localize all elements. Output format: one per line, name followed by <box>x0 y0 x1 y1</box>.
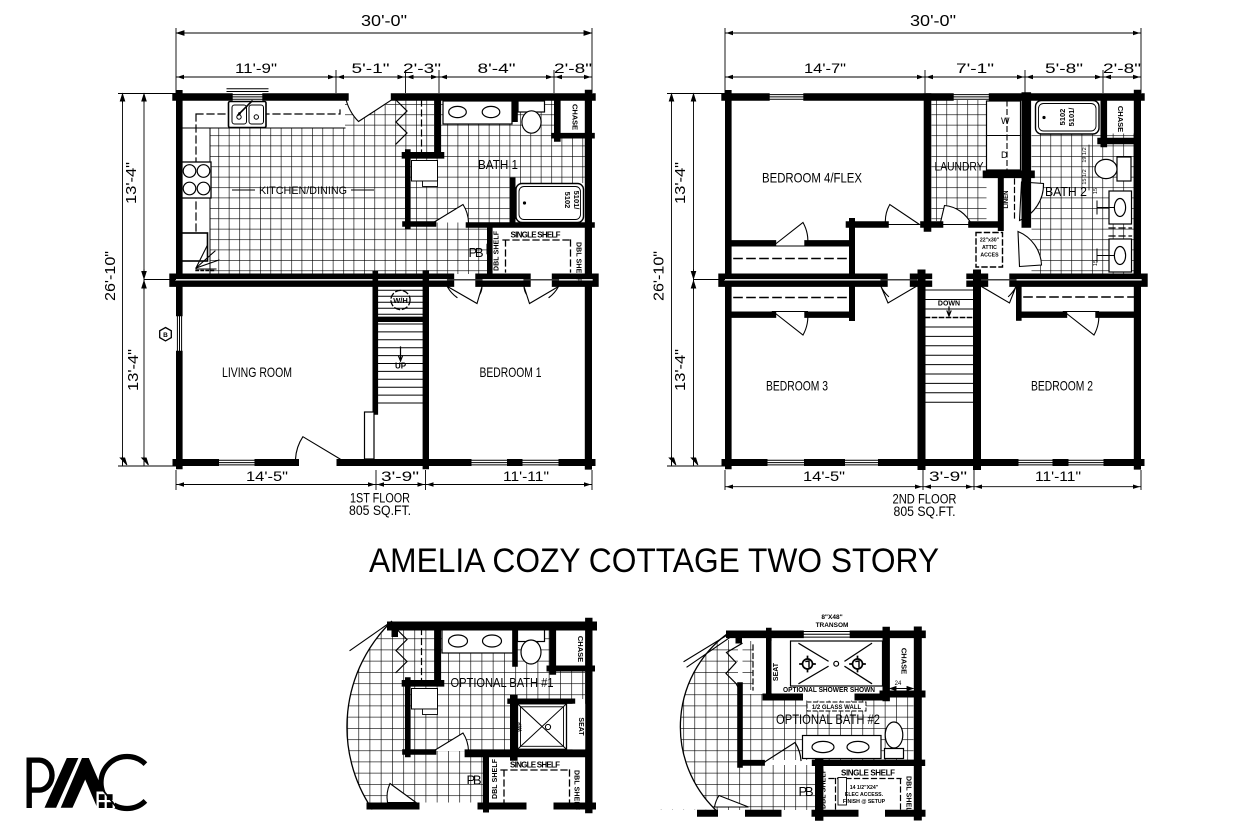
svg-text:UP: UP <box>395 362 407 371</box>
svg-text:1/2 GLASS WALL: 1/2 GLASS WALL <box>812 705 862 711</box>
svg-text:DBL SHELF: DBL SHELF <box>575 242 582 283</box>
svg-text:SEAT: SEAT <box>577 717 584 736</box>
svg-text:PB: PB <box>469 245 484 260</box>
svg-text:805 SQ.FT.: 805 SQ.FT. <box>894 504 956 519</box>
svg-text:W/P: W/P <box>518 722 524 732</box>
svg-text:5101/: 5101/ <box>572 191 581 211</box>
svg-text:AMELIA COZY COTTAGE TWO STORY: AMELIA COZY COTTAGE TWO STORY <box>369 542 939 580</box>
svg-text:19 1/2: 19 1/2 <box>1082 147 1088 162</box>
svg-text:2'-3": 2'-3" <box>403 61 441 76</box>
svg-text:SINGLE SHELF: SINGLE SHELF <box>841 769 895 778</box>
svg-text:OPTIONAL BATH #2: OPTIONAL BATH #2 <box>776 712 880 727</box>
svg-text:3'-9": 3'-9" <box>929 469 967 484</box>
svg-text:PB: PB <box>467 773 482 788</box>
svg-text:LAUNDRY: LAUNDRY <box>935 160 984 174</box>
svg-text:BEDROOM 2: BEDROOM 2 <box>1031 378 1093 394</box>
svg-text:CHASE: CHASE <box>576 636 585 662</box>
svg-text:KITCHEN/DINING: KITCHEN/DINING <box>259 185 347 197</box>
svg-text:2'-8": 2'-8" <box>1103 61 1141 76</box>
svg-text:BEDROOM 3: BEDROOM 3 <box>766 378 828 394</box>
svg-text:14'-5": 14'-5" <box>803 469 845 484</box>
svg-text:LINEN: LINEN <box>1004 191 1010 209</box>
svg-text:SINGLE SHELF: SINGLE SHELF <box>511 231 561 240</box>
svg-text:PB: PB <box>799 784 814 799</box>
svg-text:CHASE: CHASE <box>571 104 580 130</box>
svg-text:5102: 5102 <box>563 192 572 209</box>
svg-text:SINGLE SHELF: SINGLE SHELF <box>510 761 560 770</box>
svg-text:D: D <box>1001 150 1008 160</box>
svg-text:ACCES: ACCES <box>980 253 999 259</box>
svg-text:SEAT: SEAT <box>773 662 780 681</box>
svg-text:11'-9": 11'-9" <box>235 61 277 76</box>
svg-text:OPTIONAL BATH #1: OPTIONAL BATH #1 <box>451 676 554 690</box>
svg-text:15: 15 <box>1093 260 1099 266</box>
svg-text:13'-4": 13'-4" <box>672 162 689 204</box>
svg-text:BEDROOM 1: BEDROOM 1 <box>480 364 542 380</box>
svg-text:W: W <box>1001 116 1010 126</box>
svg-text:26'-10": 26'-10" <box>651 251 668 301</box>
svg-text:DBL SHELF: DBL SHELF <box>905 776 912 817</box>
svg-text:11'-11": 11'-11" <box>1035 469 1081 484</box>
svg-text:3'-9": 3'-9" <box>381 469 419 484</box>
svg-text:22"x30": 22"x30" <box>980 238 1000 244</box>
svg-text:CHASE: CHASE <box>1116 106 1125 132</box>
svg-text:14'-5": 14'-5" <box>246 469 288 484</box>
svg-text:13'-4": 13'-4" <box>123 162 140 204</box>
svg-text:24: 24 <box>895 681 902 687</box>
svg-text:15 1/2: 15 1/2 <box>1082 169 1088 184</box>
svg-text:13'-4": 13'-4" <box>672 349 689 391</box>
svg-text:ELEC ACCESS.: ELEC ACCESS. <box>845 792 884 798</box>
svg-text:5'-1": 5'-1" <box>352 61 390 76</box>
svg-text:5'-8": 5'-8" <box>1045 61 1083 76</box>
svg-text:8"X48": 8"X48" <box>821 614 842 621</box>
svg-text:TRANSOM: TRANSOM <box>816 622 849 629</box>
svg-text:CHASE: CHASE <box>900 648 909 674</box>
svg-text:DOWN: DOWN <box>938 301 960 308</box>
svg-text:2'-8": 2'-8" <box>554 61 592 76</box>
svg-text:8'-4": 8'-4" <box>478 61 516 76</box>
svg-text:30'-0": 30'-0" <box>361 13 407 30</box>
svg-text:14 1/2"X24": 14 1/2"X24" <box>850 785 879 791</box>
svg-text:DBL SHELF: DBL SHELF <box>573 770 580 811</box>
svg-text:14'-7": 14'-7" <box>804 61 846 76</box>
svg-text:13'-4": 13'-4" <box>125 349 142 391</box>
svg-text:B: B <box>163 332 168 339</box>
svg-text:805 SQ.FT.: 805 SQ.FT. <box>349 503 411 518</box>
svg-text:OPTIONAL SHOWER SHOWN: OPTIONAL SHOWER SHOWN <box>783 685 875 694</box>
svg-text:5101/: 5101/ <box>1067 107 1076 127</box>
svg-text:ATTIC: ATTIC <box>982 245 997 251</box>
svg-text:FINISH @ SETUP: FINISH @ SETUP <box>843 799 886 805</box>
svg-text:30'-0": 30'-0" <box>910 13 956 30</box>
svg-text:W/H: W/H <box>393 296 408 305</box>
svg-text:DBL SHELF: DBL SHELF <box>494 230 501 271</box>
svg-text:7'-1": 7'-1" <box>956 61 994 76</box>
svg-text:11'-11": 11'-11" <box>503 469 549 484</box>
svg-text:5102: 5102 <box>1058 109 1067 126</box>
svg-text:DBL SHELF: DBL SHELF <box>492 758 499 799</box>
svg-text:BATH 1: BATH 1 <box>478 157 518 172</box>
svg-text:BATH 2: BATH 2 <box>1045 185 1087 199</box>
svg-text:BEDROOM 4/FLEX: BEDROOM 4/FLEX <box>762 170 863 186</box>
svg-text:26'-10": 26'-10" <box>102 251 119 301</box>
svg-text:15: 15 <box>1093 188 1099 194</box>
svg-text:LIVING ROOM: LIVING ROOM <box>222 364 292 380</box>
